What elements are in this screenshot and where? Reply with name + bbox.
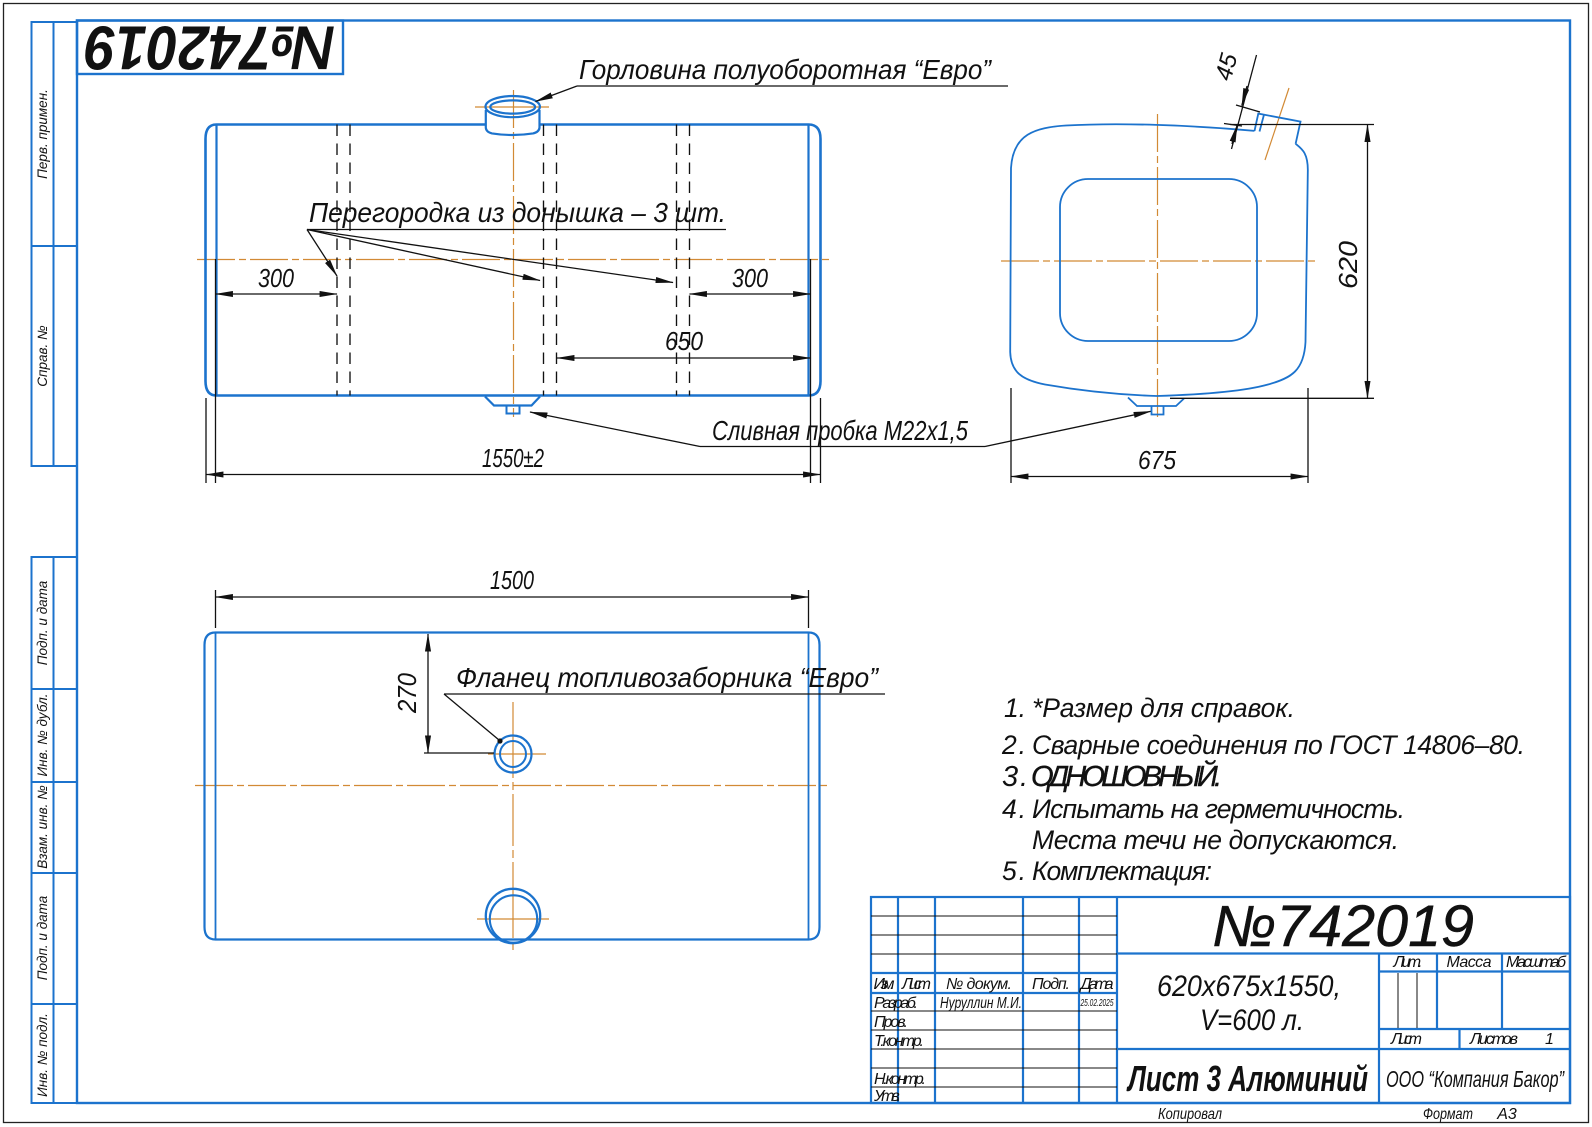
svg-text:Инв. № дубл.: Инв. № дубл.: [35, 693, 50, 776]
svg-text:Дата: Дата: [1079, 976, 1114, 993]
svg-text:Перв. примен.: Перв. примен.: [35, 89, 50, 179]
svg-text:ООО “Компания Бакор”: ООО “Компания Бакор”: [1386, 1066, 1565, 1092]
svg-text:620х675х1550,: 620х675х1550,: [1157, 970, 1341, 1003]
svg-text:Пров.: Пров.: [874, 1014, 908, 1031]
svg-text:Изм.: Изм.: [874, 976, 895, 993]
svg-text:Лист 3 Алюминий: Лист 3 Алюминий: [1126, 1058, 1368, 1099]
svg-text:V=600 л.: V=600 л.: [1200, 1004, 1304, 1037]
svg-text:Т.контр.: Т.контр.: [874, 1033, 924, 1050]
svg-text:№742019: №742019: [85, 13, 335, 82]
svg-text:№742019: №742019: [1212, 894, 1474, 959]
svg-text:620: 620: [1333, 240, 1363, 289]
svg-text:25.02.2025: 25.02.2025: [1080, 997, 1114, 1009]
svg-text:Подп.: Подп.: [1032, 976, 1070, 993]
svg-text:А3: А3: [1496, 1106, 1517, 1123]
svg-text:1500: 1500: [490, 565, 534, 595]
svg-text:Масса: Масса: [1447, 954, 1492, 971]
svg-text:4.Испытать на герметичность.: 4.Испытать на герметичность.: [1002, 794, 1405, 824]
svg-text:300: 300: [732, 263, 768, 293]
svg-text:Места течи не допускаются.: Места течи не допускаются.: [1032, 825, 1399, 855]
svg-text:Взам. инв. №: Взам. инв. №: [35, 785, 50, 869]
svg-text:Копировал: Копировал: [1158, 1106, 1222, 1123]
svg-text:Лист: Лист: [1390, 1031, 1422, 1048]
svg-text:675: 675: [1138, 445, 1176, 475]
svg-text:Разраб.: Разраб.: [874, 995, 918, 1012]
svg-text:Н.контр.: Н.контр.: [874, 1071, 926, 1088]
svg-text:1.*Размер для справок.: 1.*Размер для справок.: [1004, 693, 1295, 723]
svg-text:№ докум.: № докум.: [946, 976, 1012, 993]
svg-text:300: 300: [258, 263, 294, 293]
svg-text:Перегородка из донышка – 3 шт.: Перегородка из донышка – 3 шт.: [309, 197, 726, 228]
svg-text:Подп. и дата: Подп. и дата: [35, 895, 50, 980]
svg-text:270: 270: [392, 673, 422, 714]
svg-text:1: 1: [1545, 1031, 1554, 1048]
svg-text:Горловина полуоборотная “Евро”: Горловина полуоборотная “Евро”: [579, 54, 993, 85]
svg-text:Лист: Лист: [901, 976, 931, 993]
svg-text:Сливная пробка М22х1,5: Сливная пробка М22х1,5: [712, 415, 969, 446]
svg-text:Фланец топливозаборника “Евро”: Фланец топливозаборника “Евро”: [456, 662, 880, 693]
svg-text:650: 650: [665, 326, 703, 356]
svg-text:Подп. и дата: Подп. и дата: [35, 580, 50, 665]
svg-text:1550±2: 1550±2: [482, 443, 544, 473]
svg-text:Нуруллин М.И.: Нуруллин М.И.: [940, 995, 1022, 1012]
svg-text:Формат: Формат: [1423, 1106, 1473, 1123]
svg-text:Лит.: Лит.: [1393, 954, 1423, 971]
svg-text:Листов: Листов: [1469, 1031, 1518, 1048]
svg-text:Инв. № подл.: Инв. № подл.: [35, 1013, 50, 1097]
svg-text:Масштаб: Масштаб: [1506, 954, 1567, 971]
svg-text:3.ОДНОШОВНЫЙ.: 3.ОДНОШОВНЫЙ.: [1002, 759, 1222, 793]
svg-text:Утв.: Утв.: [873, 1088, 901, 1105]
svg-text:Справ. №: Справ. №: [35, 325, 50, 387]
svg-text:2.Сварные соединения по ГОСТ 1: 2.Сварные соединения по ГОСТ 14806–80.: [1001, 730, 1525, 760]
svg-text:5.Комплектация:: 5.Комплектация:: [1002, 856, 1212, 886]
